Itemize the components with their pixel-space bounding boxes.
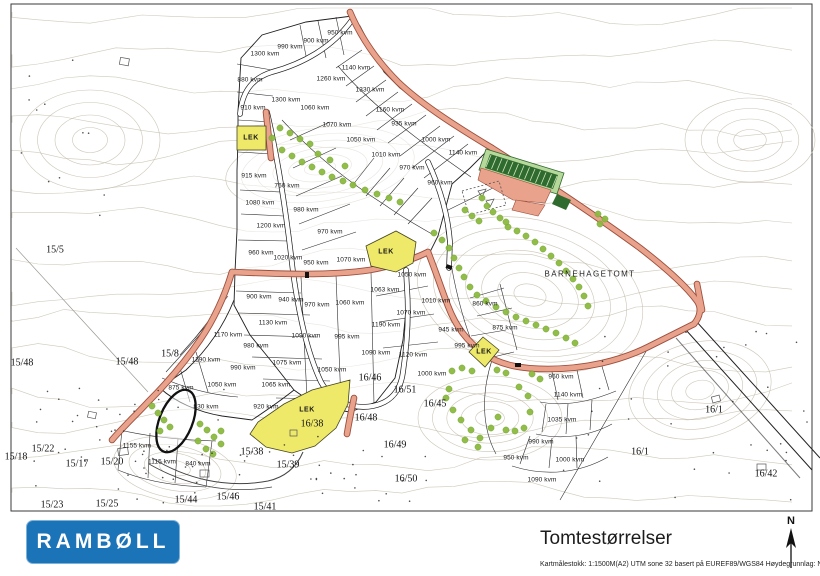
plot-size-label: 760 kvm (274, 183, 299, 190)
plot-size-label: 900 kvm (303, 38, 328, 45)
plot-size-label: 1330 kvm (356, 87, 385, 94)
plot-size-label: 1130 kvm (259, 320, 288, 327)
plot-size-label: 950 kvm (327, 30, 352, 37)
parcel-number-label: 15/22 (32, 444, 55, 455)
plot-size-label: 945 kvm (438, 327, 463, 334)
parcel-number-label: 16/46 (359, 373, 382, 384)
plot-size-label: 1090 kvm (362, 350, 391, 357)
plot-size-label: 1140 kvm (554, 392, 583, 399)
plot-size-label: 960 kvm (548, 374, 573, 381)
lek-label: LEK (476, 349, 492, 356)
parcel-number-label: 15/39 (277, 460, 300, 471)
parcel-number-label: 15/17 (66, 459, 89, 470)
parcel-number-label: 15/48 (116, 357, 139, 368)
parcel-number-label: 15/5 (46, 245, 64, 256)
plot-size-label: 1190 kvm (372, 322, 401, 329)
plot-size-label: 1050 kvm (398, 272, 427, 279)
parcel-number-label: 15/41 (254, 502, 277, 513)
plot-size-label: 950 kvm (303, 260, 328, 267)
plot-size-label: 1060 kvm (336, 300, 365, 307)
plot-size-label: 920 kvm (253, 404, 278, 411)
plot-size-label: 990 kvm (528, 439, 553, 446)
plot-size-label: 960 kvm (427, 180, 452, 187)
plot-size-label: 1050 kvm (347, 137, 376, 144)
plot-size-label: 1070 kvm (323, 122, 352, 129)
parcel-number-label: 15/25 (96, 499, 119, 510)
plot-size-label: 1300 kvm (251, 51, 280, 58)
plot-size-label: 1070 kvm (337, 257, 366, 264)
plot-size-label: 1140 kvm (449, 150, 478, 157)
parcel-number-label: 16/49 (384, 440, 407, 451)
parking-structure (478, 149, 571, 216)
plot-size-label: 1090 kvm (292, 333, 321, 340)
plot-size-label: 1000 kvm (422, 137, 451, 144)
ramboll-logo: RAMBØLL (26, 520, 180, 564)
parcel-number-label: 16/1 (631, 447, 649, 458)
plot-size-label: 1120 kvm (399, 352, 428, 359)
dual-road-southeast (676, 321, 820, 478)
plot-size-label: 950 kvm (503, 455, 528, 462)
plot-size-label: 1050 kvm (208, 382, 237, 389)
plot-size-label: 875 kvm (492, 325, 517, 332)
plot-size-label: 995 kvm (334, 334, 359, 341)
plot-size-label: 1190 kvm (192, 357, 221, 364)
parcel-number-label: 15/18 (5, 452, 28, 463)
parcel-number-label: 16/48 (355, 413, 378, 424)
plot-size-label: 1000 kvm (556, 457, 585, 464)
plot-size-label: 1000 kvm (418, 371, 447, 378)
parcel-number-label: 15/8 (161, 349, 179, 360)
plot-size-label: 1065 kvm (262, 382, 291, 389)
plot-size-label: 1300 kvm (272, 97, 301, 104)
plot-size-label: 940 kvm (278, 297, 303, 304)
parcel-number-label: 15/44 (175, 495, 198, 506)
barnehage-area-label: BARNEHAGETOMT (545, 270, 636, 279)
plot-size-label: 990 kvm (277, 44, 302, 51)
parcel-number-label: 15/46 (217, 492, 240, 503)
plot-size-label: 830 kvm (193, 404, 218, 411)
plot-size-label: 1115 kvm (148, 459, 176, 466)
parcel-number-label: 15/48 (11, 358, 34, 369)
plot-size-label: 970 kvm (399, 165, 424, 172)
lek-label: LEK (299, 407, 315, 414)
plot-size-label: 1020 kvm (274, 255, 303, 262)
plot-size-label: 1035 kvm (548, 417, 577, 424)
plot-size-label: 1010 kvm (372, 152, 401, 159)
title-block: RAMBØLL Tomtestørrelser Kartmålestokk: 1… (0, 512, 820, 576)
plot-size-label: 960 kvm (248, 250, 273, 257)
plot-size-label: 900 kvm (246, 294, 271, 301)
north-arrow: N (778, 516, 804, 574)
plot-size-label: 860 kvm (472, 301, 497, 308)
plot-size-label: 1075 kvm (273, 360, 302, 367)
page-title: Tomtestørrelser (540, 528, 672, 550)
plot-size-label: 1063 kvm (371, 287, 400, 294)
plot-size-label: 1140 kvm (342, 65, 371, 72)
plot-size-label: 1070 kvm (397, 310, 426, 317)
parcel-number-label: 15/20 (101, 457, 124, 468)
map-canvas (0, 0, 820, 576)
parcel-number-label: 16/45 (424, 399, 447, 410)
north-arrow-icon (778, 526, 804, 570)
plot-size-label: 1050 kvm (318, 367, 347, 374)
plot-size-label: 1080 kvm (246, 200, 275, 207)
map-sheet: 950 kvm900 kvm990 kvm1300 kvm1140 kvm126… (0, 0, 820, 576)
plot-size-label: 915 kvm (241, 173, 266, 180)
parcel-number-label: 15/23 (41, 500, 64, 511)
lek-label: LEK (243, 135, 259, 142)
plot-size-label: 1155 kvm (123, 443, 152, 450)
plot-size-label: 980 kvm (293, 207, 318, 214)
plot-size-label: 1170 kvm (214, 332, 243, 339)
plot-size-label: 1010 kvm (422, 298, 451, 305)
north-label: N (778, 516, 804, 526)
parcel-number-label: 16/42 (755, 469, 778, 480)
parcel-number-label: 15/38 (241, 447, 264, 458)
plot-size-label: 970 kvm (304, 302, 329, 309)
plot-size-label: 840 kvm (185, 461, 210, 468)
plot-size-label: 1200 kvm (257, 223, 286, 230)
lek-label: LEK (378, 249, 394, 256)
plot-size-label: 910 kvm (240, 105, 265, 112)
plot-size-label: 935 kvm (391, 121, 416, 128)
plot-size-label: 880 kvm (237, 77, 262, 84)
plot-size-label: 1090 kvm (528, 477, 557, 484)
parcel-number-label: 16/51 (394, 385, 417, 396)
parcel-number-label: 16/38 (301, 419, 324, 430)
plot-size-label: 990 kvm (230, 365, 255, 372)
plot-size-label: 875 kvm (168, 385, 193, 392)
plot-size-label: 1160 kvm (376, 107, 405, 114)
plot-size-label: 970 kvm (317, 229, 342, 236)
plot-size-label: 1260 kvm (317, 76, 346, 83)
plot-size-label: 1060 kvm (301, 105, 330, 112)
plot-size-label: 980 kvm (243, 343, 268, 350)
parcel-number-label: 16/1 (705, 405, 723, 416)
parcel-number-label: 16/50 (395, 474, 418, 485)
